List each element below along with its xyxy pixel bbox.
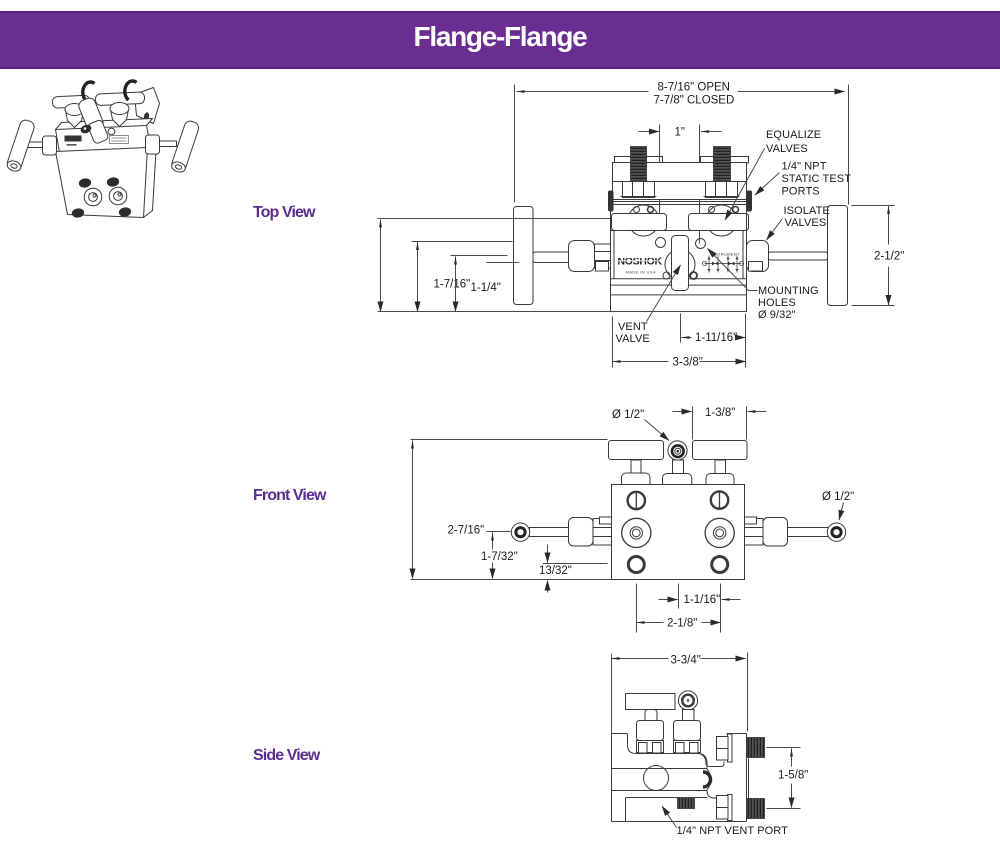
svg-text:1-5/8": 1-5/8" xyxy=(778,770,808,782)
svg-text:VALVES: VALVES xyxy=(766,143,808,155)
svg-text:13/32": 13/32" xyxy=(539,565,572,577)
svg-text:2-7/16": 2-7/16" xyxy=(448,525,485,537)
svg-text:1-7/16": 1-7/16" xyxy=(434,279,471,291)
svg-text:Ø 1/2": Ø 1/2" xyxy=(822,491,854,503)
svg-text:7-7/8" CLOSED: 7-7/8" CLOSED xyxy=(654,95,735,107)
svg-text:MOUNTING: MOUNTING xyxy=(758,285,819,297)
svg-text:1-11/16": 1-11/16" xyxy=(695,332,737,344)
svg-text:1-1/16": 1-1/16" xyxy=(684,594,721,606)
svg-text:1/4" NPT: 1/4" NPT xyxy=(782,161,827,173)
svg-text:8-7/16" OPEN: 8-7/16" OPEN xyxy=(658,82,730,94)
svg-text:3-3/4": 3-3/4" xyxy=(671,655,701,667)
svg-text:MADE IN USA: MADE IN USA xyxy=(626,270,656,275)
svg-text:1": 1" xyxy=(675,127,685,139)
svg-text:2-1/2": 2-1/2" xyxy=(874,251,904,263)
svg-text:2-1/8": 2-1/8" xyxy=(667,618,697,630)
svg-text:3-3/8": 3-3/8" xyxy=(673,357,703,369)
svg-text:1/4" NPT VENT PORT: 1/4" NPT VENT PORT xyxy=(677,825,789,837)
svg-text:ISOLATE: ISOLATE xyxy=(784,205,830,217)
svg-text:EQUALIZE: EQUALIZE xyxy=(766,129,821,141)
svg-text:Ø 9/32": Ø 9/32" xyxy=(758,309,796,321)
svg-text:1-1/4": 1-1/4" xyxy=(471,282,501,294)
svg-text:VALVES: VALVES xyxy=(785,217,827,229)
svg-text:1-7/32": 1-7/32" xyxy=(481,551,518,563)
svg-text:1-3/8": 1-3/8" xyxy=(705,407,735,419)
svg-text:Ø 1/2": Ø 1/2" xyxy=(612,409,644,421)
svg-text:PORTS: PORTS xyxy=(782,186,820,198)
svg-text:VALVE: VALVE xyxy=(616,333,650,345)
svg-text:STATIC TEST: STATIC TEST xyxy=(782,173,852,185)
svg-text:VENT: VENT xyxy=(618,321,648,333)
svg-text:HOLES: HOLES xyxy=(758,297,796,309)
